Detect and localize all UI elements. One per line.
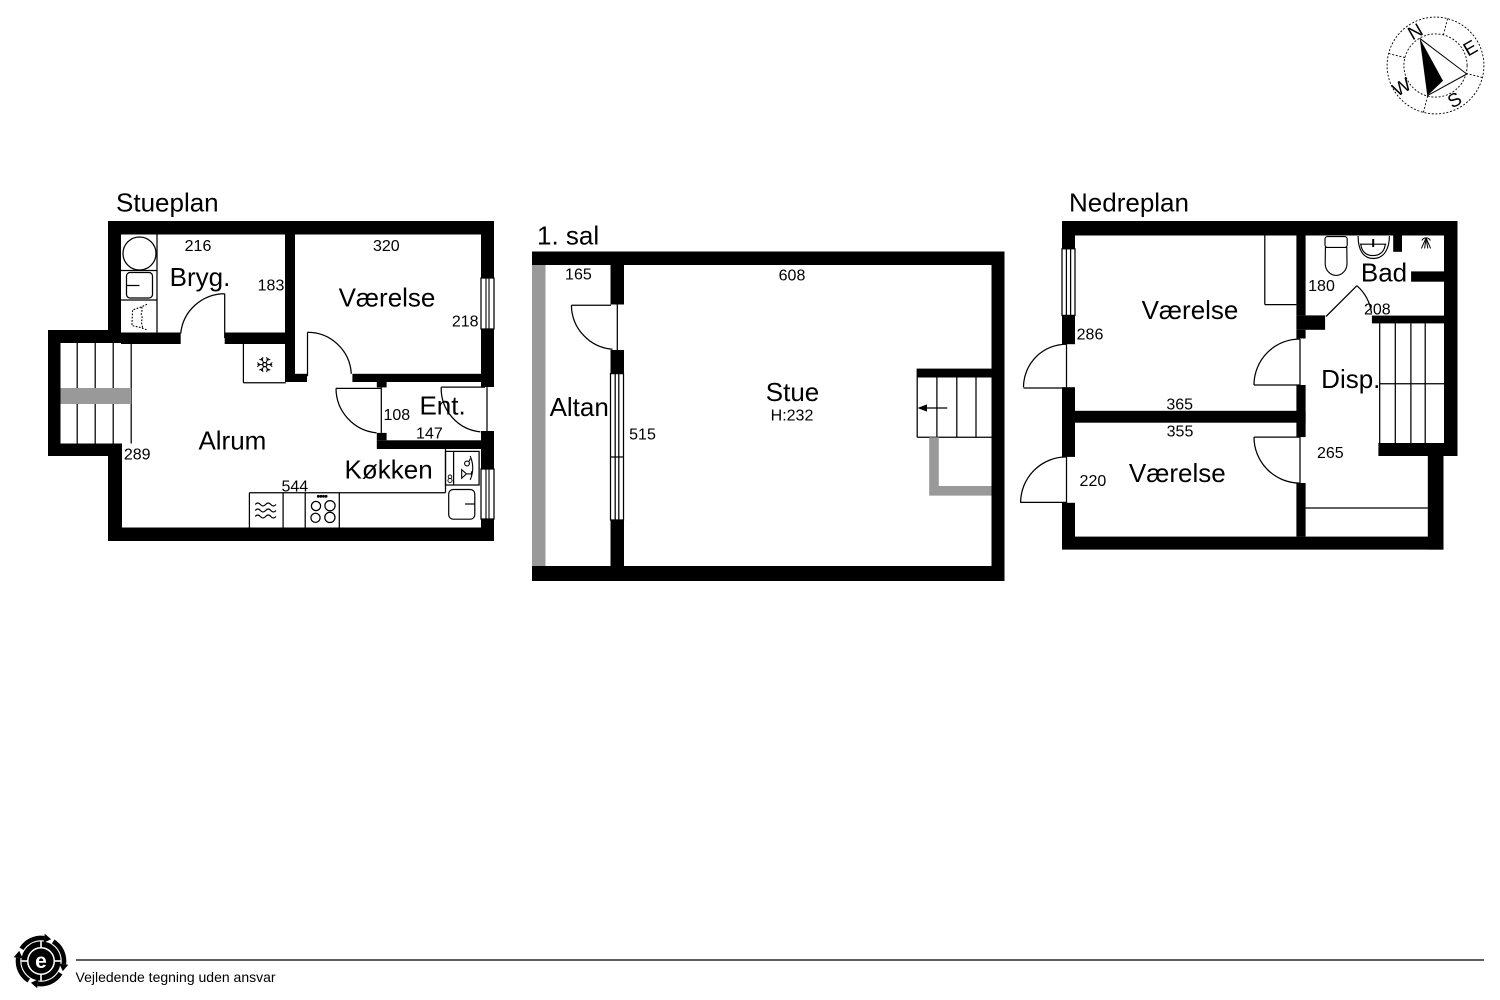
svg-text:Værelse: Værelse [1129,458,1226,488]
svg-text:265: 265 [1317,445,1344,462]
svg-text:515: 515 [629,427,656,444]
svg-text:Bad: Bad [1361,258,1407,288]
svg-text:e: e [35,950,47,973]
svg-text:Værelse: Værelse [1142,295,1239,325]
svg-text:286: 286 [1077,327,1104,344]
svg-text:Værelse: Værelse [339,283,436,313]
svg-text:218: 218 [452,314,479,331]
svg-text:Disp.: Disp. [1321,364,1380,394]
svg-text:165: 165 [565,267,592,284]
svg-text:Altan: Altan [550,392,609,422]
svg-text:365: 365 [1166,397,1193,414]
svg-text:Stueplan: Stueplan [116,188,219,218]
svg-text:220: 220 [1080,473,1107,490]
svg-text:208: 208 [1364,302,1391,319]
svg-text:216: 216 [185,238,212,255]
svg-text:544: 544 [281,479,308,496]
svg-text:Køkken: Køkken [345,455,433,485]
svg-text:320: 320 [373,238,400,255]
svg-text:Nedreplan: Nedreplan [1069,188,1189,218]
svg-text:Vejledende tegning uden ansvar: Vejledende tegning uden ansvar [76,969,276,985]
svg-text:608: 608 [779,268,806,285]
svg-text:Alrum: Alrum [198,426,266,456]
svg-text:Stue: Stue [766,377,820,407]
svg-text:1. sal: 1. sal [537,221,599,251]
svg-text:180: 180 [1308,278,1335,295]
svg-text:183: 183 [258,278,285,295]
svg-text:108: 108 [383,407,410,424]
svg-text:Ent.: Ent. [419,391,465,421]
svg-text:147: 147 [416,426,443,443]
svg-text:355: 355 [1167,424,1194,441]
svg-text:H:232: H:232 [771,408,814,425]
svg-text:289: 289 [124,447,151,464]
svg-text:Bryg.: Bryg. [170,262,231,292]
